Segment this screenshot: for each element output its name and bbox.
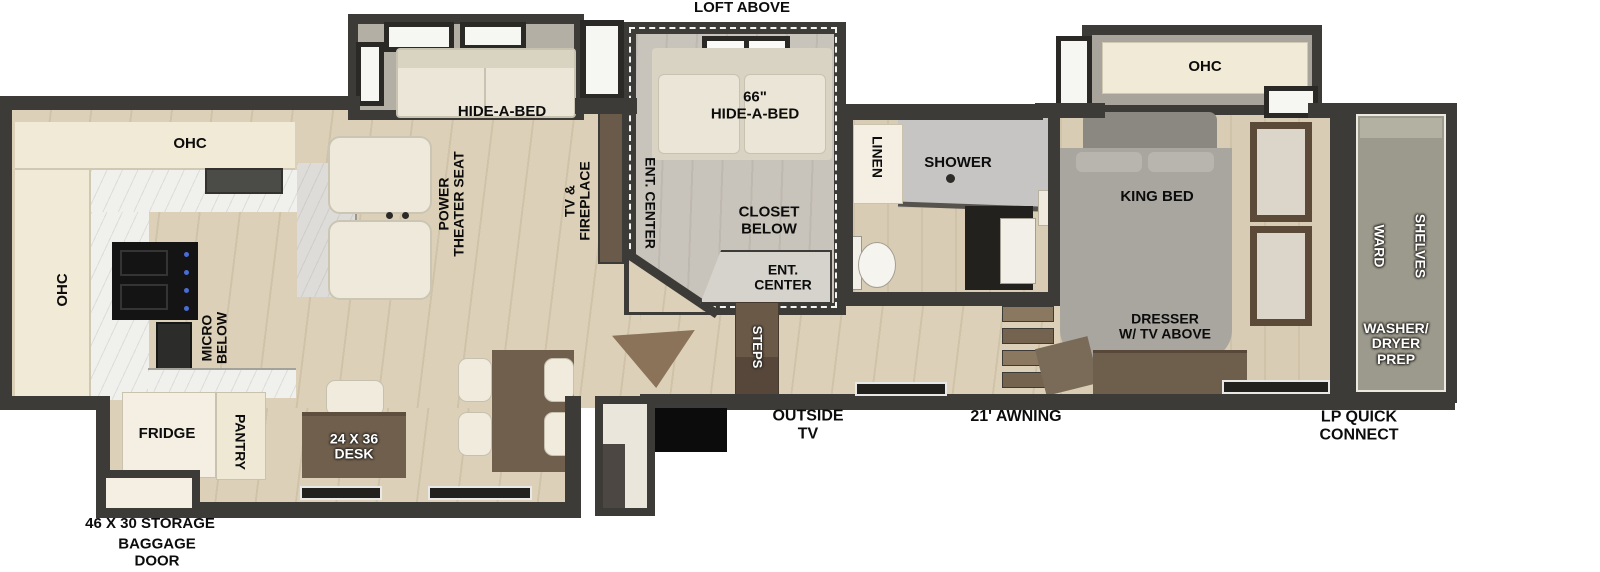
loft-bed-label-line: 66" <box>711 90 799 107</box>
window-bottom <box>1222 380 1330 394</box>
burner-light <box>184 270 189 275</box>
kitchen-ohc-top-cabinet <box>15 122 295 170</box>
wall-bedroom-top-left <box>1035 103 1105 118</box>
loft-bed-label: 66" HIDE-A-BED <box>711 90 799 123</box>
ent-center-bottom-label: ENT. CENTER <box>754 263 812 294</box>
loft-above-label: LOFT ABOVE <box>694 0 790 16</box>
pillow <box>1148 152 1214 172</box>
micro-below-label-line: BELOW <box>215 312 230 364</box>
range-cooktop <box>112 242 198 320</box>
washer-dryer-line: DRYER <box>1363 336 1428 351</box>
outside-tv <box>655 404 727 452</box>
range-hood <box>205 168 283 194</box>
wall-bath-top <box>843 104 1043 120</box>
ward-label: WARD <box>1371 225 1386 268</box>
closet-below-label: CLOSET BELOW <box>739 205 800 238</box>
shelves-label: SHELVES <box>1412 214 1427 278</box>
closet-below-label-line: BELOW <box>739 221 800 238</box>
wall-bath-left <box>843 104 853 306</box>
cupholder <box>386 212 393 219</box>
linen-label: LINEN <box>869 136 884 178</box>
kitchen-ohc-top-label: OHC <box>173 136 206 153</box>
burner-grate <box>120 284 168 310</box>
baggage-door-label-line: DOOR <box>118 553 196 570</box>
lp-quick-connect-line: CONNECT <box>1319 426 1398 444</box>
burner-light <box>184 306 189 311</box>
theater-seat-label: POWER THEATER SEAT <box>437 151 468 256</box>
window-bottom <box>855 382 947 396</box>
toilet-bowl <box>858 242 896 288</box>
stair-tread <box>1002 306 1054 322</box>
loft-bed-label-line: HIDE-A-BED <box>711 106 799 123</box>
front-window <box>1250 226 1312 326</box>
dining-chair <box>458 358 492 402</box>
window-bottom <box>428 486 532 500</box>
wall-bath-bedroom <box>1048 104 1060 306</box>
stair-tread <box>1002 328 1054 344</box>
tv-fireplace-label: TV & FIREPLACE <box>563 161 594 240</box>
theater-seat-label-line: THEATER SEAT <box>452 151 467 256</box>
desk-chair <box>326 380 384 416</box>
tv-fireplace-label-line: FIREPLACE <box>578 161 593 240</box>
shower-drain <box>946 174 955 183</box>
baggage-door-label-line: BAGGAGE <box>118 537 196 554</box>
pillow <box>1076 152 1142 172</box>
awning-label: 21' AWNING <box>970 408 1061 426</box>
dresser-label: DRESSER W/ TV ABOVE <box>1119 312 1211 343</box>
theater-seat-cushion <box>328 136 432 214</box>
micro-below-label-line: MICRO <box>200 312 215 364</box>
wall-bedroom-right <box>1330 103 1350 403</box>
dresser-label-line: W/ TV ABOVE <box>1119 327 1211 342</box>
sofa-hide-a-bed-label: HIDE-A-BED <box>458 104 546 121</box>
burner-grate <box>120 250 168 276</box>
king-bed-label: KING BED <box>1120 189 1193 206</box>
wall-dining-right <box>565 396 581 518</box>
desk-label-line: DESK <box>330 447 378 462</box>
slide-side-window <box>356 42 384 106</box>
theater-seat-cushion <box>328 220 432 300</box>
sofa-back-cushion <box>398 50 574 68</box>
baggage-door-label: BAGGAGE DOOR <box>118 537 196 570</box>
theater-seat-label-line: POWER <box>437 151 452 256</box>
burner-light <box>184 288 189 293</box>
vanity-sink <box>1000 218 1036 284</box>
lp-quick-connect-line: LP QUICK <box>1319 408 1398 426</box>
wall-step-left <box>0 396 110 410</box>
tv-fireplace-label-line: TV & <box>563 161 578 240</box>
slide-window <box>460 22 526 50</box>
micro-below-label: MICRO BELOW <box>200 312 231 364</box>
window-bottom <box>300 486 382 500</box>
entry-step-well-interior <box>603 404 647 508</box>
window-between-slide-and-loft <box>580 20 624 100</box>
wall-left-rear <box>0 96 12 410</box>
front-cap-top-shelf <box>1360 118 1442 138</box>
oven-below <box>156 322 192 374</box>
lp-quick-connect-label: LP QUICK CONNECT <box>1319 408 1398 443</box>
entry-step-shadow <box>603 444 625 508</box>
burner-light <box>184 252 189 257</box>
pantry-label: PANTRY <box>232 414 247 470</box>
shower-label: SHOWER <box>924 155 992 172</box>
outside-tv-label-line: OUTSIDE <box>772 407 843 425</box>
theater-seat-sofa <box>328 136 432 300</box>
floor-hallway <box>640 306 1060 396</box>
floorplan-canvas: LOFT ABOVE OHC OHC HIDE-A-BED POWER THEA… <box>0 0 1600 572</box>
fridge-label: FRIDGE <box>139 426 196 443</box>
dining-chair <box>458 412 492 456</box>
kitchen-ohc-left-label: OHC <box>55 273 72 306</box>
bedroom-ohc-label: OHC <box>1188 59 1221 76</box>
storage-compartment-interior <box>106 478 192 508</box>
closet-below-label-line: CLOSET <box>739 205 800 222</box>
outside-tv-label: OUTSIDE TV <box>772 407 843 442</box>
washer-dryer-prep-label: WASHER/ DRYER PREP <box>1363 321 1428 367</box>
wall-mid-top <box>575 98 637 114</box>
ent-center-bottom-line: ENT. <box>754 263 812 278</box>
dresser-label-line: DRESSER <box>1119 312 1211 327</box>
cupholder <box>402 212 409 219</box>
front-window <box>1250 122 1312 222</box>
outside-tv-label-line: TV <box>772 425 843 443</box>
steps-label: STEPS <box>750 326 764 369</box>
ent-center-side-label: ENT. CENTER <box>642 157 657 249</box>
bedroom-slide-window <box>1056 36 1092 112</box>
ent-center-bottom-line: CENTER <box>754 278 812 293</box>
storage-label: 46 X 30 STORAGE <box>85 516 215 533</box>
desk-label: 24 X 36 DESK <box>330 432 378 463</box>
wall-bath-bottom <box>843 292 1060 306</box>
washer-dryer-line: PREP <box>1363 352 1428 367</box>
wall-top-rear <box>0 96 360 110</box>
tv-fireplace-wall <box>598 112 624 264</box>
